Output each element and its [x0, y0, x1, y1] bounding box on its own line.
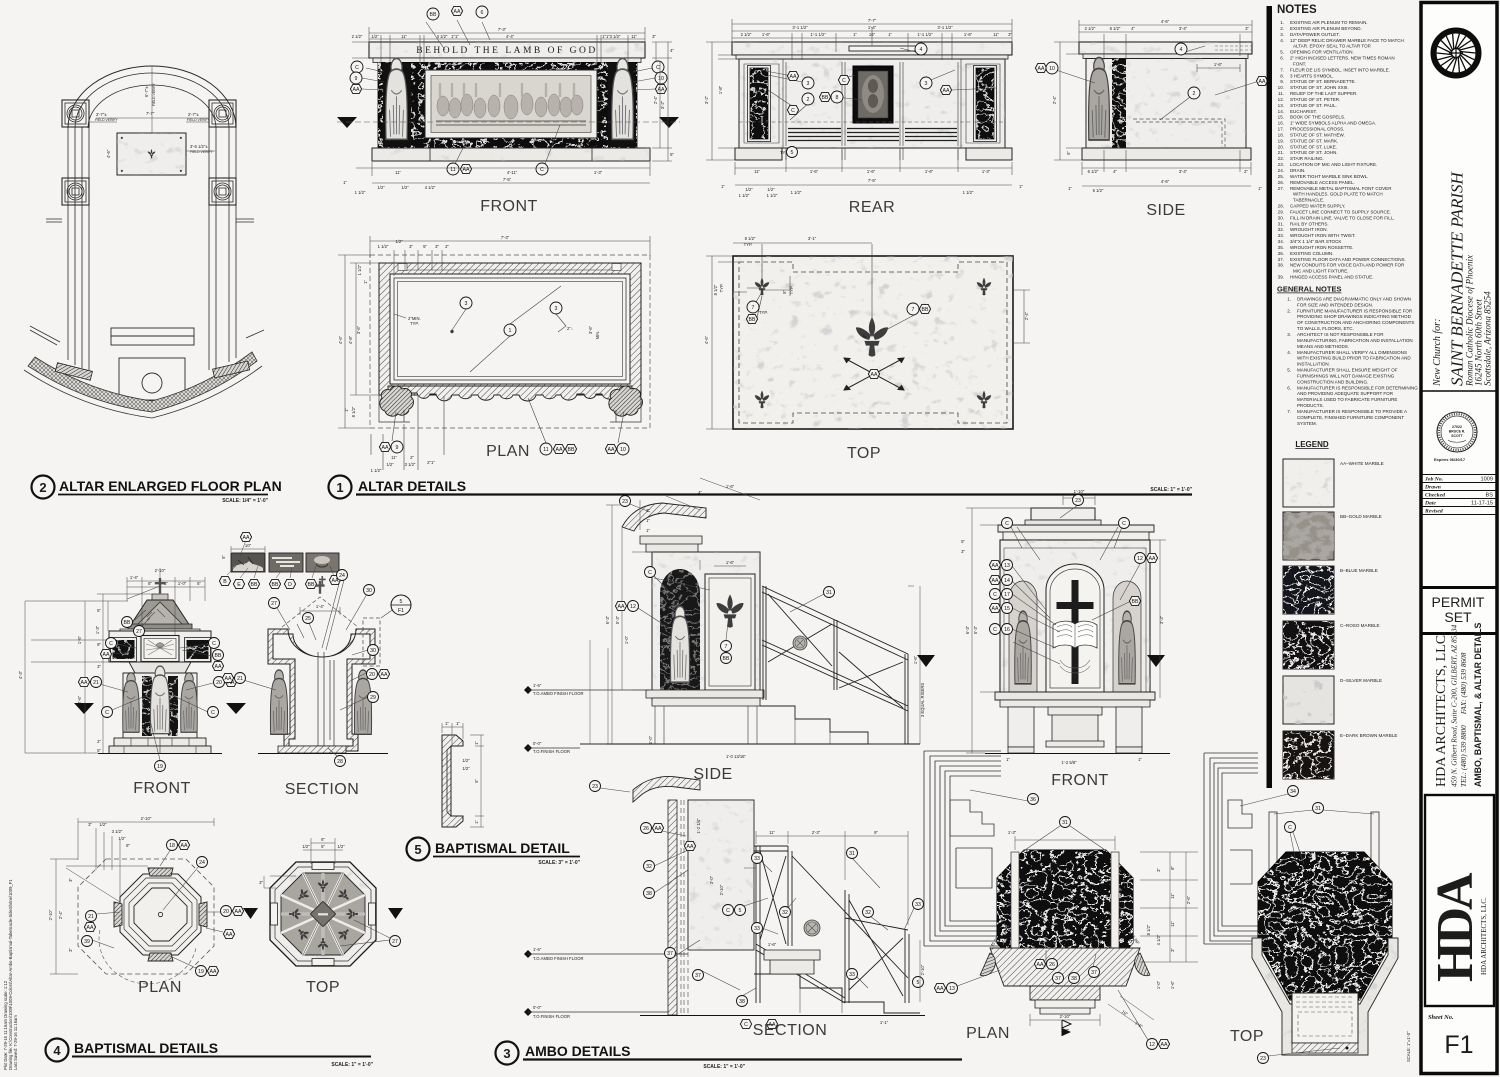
- svg-text:11": 11": [1170, 893, 1175, 899]
- svg-text:15: 15: [1004, 606, 1010, 612]
- svg-text:4'-4": 4'-4": [506, 34, 515, 39]
- svg-text:FRONT: FRONT: [1051, 772, 1109, 789]
- svg-text:SET: SET: [1444, 609, 1472, 625]
- svg-text:AA: AA: [1038, 66, 1045, 72]
- svg-text:3": 3": [1245, 26, 1249, 31]
- svg-text:BB: BB: [272, 582, 279, 588]
- svg-text:4'-3": 4'-3": [18, 670, 23, 679]
- svg-text:STATUE OF ST. LUKE.: STATUE OF ST. LUKE.: [1290, 144, 1337, 149]
- svg-text:WATER TIGHT MARBLE SINK BOWL.: WATER TIGHT MARBLE SINK BOWL.: [1290, 174, 1368, 179]
- svg-text:32: 32: [782, 910, 788, 916]
- svg-text:1'-2 5/8": 1'-2 5/8": [1061, 760, 1077, 765]
- svg-text:AA: AA: [243, 535, 250, 541]
- svg-text:BB: BB: [215, 653, 222, 659]
- svg-text:1/2": 1/2": [371, 34, 379, 39]
- svg-text:4'-11": 4'-11": [507, 170, 518, 175]
- svg-text:MEANS AND METHODS.: MEANS AND METHODS.: [1297, 344, 1349, 349]
- svg-text:1'-2 1/4": 1'-2 1/4": [696, 818, 701, 834]
- svg-text:SIDE: SIDE: [1146, 202, 1185, 219]
- svg-text:WITH EXISTING BUILD PRIOR TO F: WITH EXISTING BUILD PRIOR TO FABRICATION…: [1297, 356, 1411, 361]
- svg-text:10: 10: [620, 447, 626, 453]
- svg-text:3'-2": 3'-2": [660, 100, 665, 109]
- svg-text:21.: 21.: [1278, 150, 1284, 155]
- svg-text:17.: 17.: [1278, 127, 1284, 132]
- svg-text:2'-6": 2'-6": [77, 695, 82, 704]
- svg-text:FOR SIZE AND INTENDED DESIGN.: FOR SIZE AND INTENDED DESIGN.: [1297, 302, 1373, 307]
- svg-text:GENERAL NOTES: GENERAL NOTES: [1277, 285, 1341, 294]
- svg-text:2: 2: [807, 97, 810, 103]
- svg-text:2" HIGH INCISED LETTERS. NEW T: 2" HIGH INCISED LETTERS. NEW TIMES ROMAN: [1290, 56, 1395, 61]
- svg-text:C: C: [993, 627, 997, 633]
- svg-text:8": 8": [126, 843, 130, 848]
- svg-text:PERMIT: PERMIT: [1432, 594, 1485, 610]
- svg-text:1'-3": 1'-3": [1008, 830, 1017, 835]
- svg-text:RAIL BY OTHERS.: RAIL BY OTHERS.: [1290, 221, 1329, 226]
- svg-text:2": 2": [1244, 169, 1248, 174]
- svg-text:19.: 19.: [1278, 138, 1284, 143]
- svg-text:1'-6": 1'-6": [726, 484, 735, 489]
- svg-text:4": 4": [670, 48, 674, 53]
- svg-text:ALTAR. EPOXY SEAL TO ALTAR TOP: ALTAR. EPOXY SEAL TO ALTAR TOP.: [1293, 44, 1371, 49]
- svg-text:2": 2": [410, 455, 414, 460]
- svg-text:1'-0": 1'-0": [648, 735, 653, 744]
- svg-text:30.: 30.: [1278, 215, 1284, 220]
- svg-text:11": 11": [401, 34, 407, 39]
- svg-text:7'-3": 7'-3": [498, 27, 507, 32]
- svg-text:34.: 34.: [1278, 239, 1284, 244]
- svg-text:9": 9": [97, 642, 101, 647]
- svg-text:3: 3: [555, 306, 558, 312]
- svg-text:2: 2: [1193, 91, 1196, 97]
- svg-text:33: 33: [849, 972, 855, 978]
- svg-text:STATUE OF ST. BERNADETTE.: STATUE OF ST. BERNADETTE.: [1290, 79, 1356, 84]
- svg-text:4'-6": 4'-6": [106, 149, 111, 158]
- svg-text:Revised: Revised: [1424, 509, 1443, 515]
- svg-text:D: D: [288, 582, 292, 588]
- svg-text:AA: AA: [235, 909, 242, 915]
- svg-text:7: 7: [752, 305, 755, 311]
- svg-text:WROUGHT IRON ROSSETTE.: WROUGHT IRON ROSSETTE.: [1290, 245, 1354, 250]
- svg-text:32.: 32.: [1278, 227, 1284, 232]
- svg-text:36.: 36.: [1278, 251, 1284, 256]
- svg-text:2'-4": 2'-4": [1052, 95, 1057, 104]
- svg-text:B–BLUE MARBLE: B–BLUE MARBLE: [1340, 568, 1378, 573]
- svg-text:1": 1": [646, 528, 650, 533]
- svg-text:8": 8": [148, 581, 152, 586]
- svg-text:24: 24: [199, 860, 205, 866]
- svg-text:LEGEND: LEGEND: [1295, 440, 1329, 449]
- svg-text:11": 11": [631, 34, 637, 39]
- svg-text:STATUE OF ST. JOHN XXIII.: STATUE OF ST. JOHN XXIII.: [1290, 85, 1349, 90]
- svg-text:FAUCET LINE CONNECT TO SUPPLY: FAUCET LINE CONNECT TO SUPPLY SOURCE.: [1290, 209, 1391, 214]
- svg-text:MIN.: MIN.: [595, 331, 600, 340]
- svg-text:AA: AA: [556, 447, 563, 453]
- svg-text:AA: AA: [992, 606, 999, 612]
- svg-text:1"1": 1"1": [451, 34, 459, 39]
- svg-text:TOP: TOP: [306, 979, 340, 996]
- svg-text:AA: AA: [992, 578, 999, 584]
- svg-text:TOP: TOP: [1230, 1028, 1264, 1045]
- svg-text:27.: 27.: [1278, 186, 1284, 191]
- svg-text:Drawn: Drawn: [1424, 485, 1441, 491]
- svg-text:1'-6": 1'-6": [913, 655, 918, 664]
- svg-text:2'-4": 2'-4": [1024, 311, 1029, 320]
- svg-text:39: 39: [84, 939, 90, 945]
- svg-text:FIELD VERIFY: FIELD VERIFY: [95, 118, 119, 122]
- svg-text:6.: 6.: [1280, 56, 1284, 61]
- svg-text:3 HEARTS SYMBOL.: 3 HEARTS SYMBOL.: [1290, 73, 1334, 78]
- svg-text:3 1/2": 3 1/2": [437, 34, 448, 39]
- svg-text:31: 31: [1315, 806, 1321, 812]
- svg-text:3": 3": [652, 34, 656, 39]
- svg-text:38: 38: [646, 891, 652, 897]
- svg-text:13: 13: [949, 986, 955, 992]
- svg-text:HINGED ACCESS PANEL AND STATUE: HINGED ACCESS PANEL AND STATUE.: [1290, 275, 1373, 280]
- svg-text:33: 33: [754, 926, 760, 932]
- svg-text:28: 28: [337, 759, 343, 765]
- svg-text:C: C: [993, 592, 997, 598]
- svg-text:24: 24: [339, 573, 345, 579]
- svg-text:BAPTISMAL DETAILS: BAPTISMAL DETAILS: [74, 1040, 218, 1056]
- svg-text:SCALE: 1" = 1'-0": SCALE: 1" = 1'-0": [1150, 487, 1192, 493]
- svg-text:30: 30: [370, 648, 376, 654]
- svg-text:Last Saved: 7-29-16 11:16am: Last Saved: 7-29-16 11:16am: [13, 1015, 18, 1070]
- svg-text:17: 17: [1004, 592, 1010, 598]
- svg-text:11": 11": [769, 830, 775, 835]
- svg-text:9: 9: [355, 76, 358, 82]
- svg-text:T.O.AMBO FINISH FLOOR: T.O.AMBO FINISH FLOOR: [533, 691, 584, 696]
- svg-text:F1: F1: [1444, 1031, 1473, 1059]
- svg-text:9.: 9.: [1280, 79, 1284, 84]
- svg-text:1'-6": 1'-6": [726, 560, 735, 565]
- svg-text:1'-6": 1'-6": [867, 169, 876, 174]
- svg-text:23.: 23.: [1278, 162, 1284, 167]
- svg-text:26.: 26.: [1278, 180, 1284, 185]
- svg-text:38: 38: [739, 999, 745, 1005]
- svg-text:5": 5": [1066, 151, 1071, 155]
- svg-text:4.: 4.: [1287, 350, 1291, 355]
- svg-text:1": 1": [1006, 757, 1010, 762]
- svg-text:COMPLETE, FINISHED FURNITURE C: COMPLETE, FINISHED FURNITURE COMPONENT: [1297, 415, 1404, 420]
- svg-text:6 1/2": 6 1/2": [1110, 26, 1121, 31]
- svg-text:1'-6": 1'-6": [925, 169, 934, 174]
- svg-text:HDA: HDA: [1427, 872, 1484, 982]
- svg-text:18.: 18.: [1278, 133, 1284, 138]
- svg-text:EXISTING AIR PLENUM TO REMAIN.: EXISTING AIR PLENUM TO REMAIN.: [1290, 20, 1368, 25]
- svg-text:1'-7": 1'-7": [1061, 1028, 1070, 1033]
- svg-text:4'-6": 4'-6": [1161, 19, 1170, 24]
- svg-text:E–DARK BROWN MARBLE: E–DARK BROWN MARBLE: [1340, 733, 1397, 738]
- svg-text:PRODUCTS.: PRODUCTS.: [1297, 403, 1324, 408]
- svg-text:FIELD VERIFY: FIELD VERIFY: [190, 150, 214, 154]
- svg-text:MIC AND LIGHT FIXTURE.: MIC AND LIGHT FIXTURE.: [1293, 269, 1349, 274]
- svg-text:12: 12: [1149, 1042, 1155, 1048]
- svg-text:1": 1": [1138, 757, 1142, 762]
- svg-text:1 1/2": 1 1/2": [378, 244, 389, 249]
- svg-text:6 1/2": 6 1/2": [1093, 188, 1104, 193]
- svg-text:20.: 20.: [1278, 144, 1284, 149]
- svg-text:RELIEF OF THE LAST SUPPER.: RELIEF OF THE LAST SUPPER.: [1290, 91, 1358, 96]
- svg-text:37: 37: [695, 973, 701, 979]
- svg-text:27: 27: [136, 629, 142, 635]
- svg-text:0'-0": 0'-0": [533, 1005, 542, 1010]
- svg-text:1009: 1009: [1481, 477, 1493, 483]
- svg-text:C: C: [648, 570, 652, 576]
- svg-text:BB: BB: [922, 307, 929, 313]
- svg-text:T.O.FINISH FLOOR: T.O.FINISH FLOOR: [533, 1014, 570, 1019]
- svg-text:11": 11": [395, 170, 401, 175]
- svg-text:3": 3": [88, 822, 92, 827]
- svg-text:4'-8": 4'-8": [348, 335, 353, 344]
- svg-text:C: C: [656, 65, 660, 71]
- svg-text:6 1/2": 6 1/2": [1088, 169, 1099, 174]
- svg-text:3": 3": [68, 878, 73, 882]
- svg-text:3 1/2": 3 1/2": [405, 462, 416, 467]
- svg-text:STATUE OF ST. MATHEW.: STATUE OF ST. MATHEW.: [1290, 133, 1345, 138]
- svg-text:38: 38: [1071, 976, 1077, 982]
- svg-text:Date: Date: [1424, 501, 1436, 507]
- svg-text:1'-6": 1'-6": [810, 169, 819, 174]
- svg-text:7'-5": 7'-5": [503, 177, 512, 182]
- svg-text:BB: BB: [1132, 599, 1139, 605]
- svg-text:1'-6": 1'-6": [533, 683, 542, 688]
- svg-text:Scottsdale, Arizona 85254: Scottsdale, Arizona 85254: [1483, 291, 1493, 386]
- svg-text:1 1/2": 1 1/2": [739, 193, 750, 198]
- svg-text:32: 32: [865, 910, 871, 916]
- svg-text:BB–GOLD MARBLE: BB–GOLD MARBLE: [1340, 514, 1382, 519]
- svg-text:TOP: TOP: [847, 445, 881, 462]
- svg-text:CAPPED WATER SUPPLY.: CAPPED WATER SUPPLY.: [1290, 204, 1345, 209]
- svg-text:2'-7"±: 2'-7"±: [96, 112, 107, 117]
- svg-text:1/2": 1/2": [462, 758, 470, 763]
- svg-text:1'-6": 1'-6": [964, 32, 973, 37]
- svg-text:1": 1": [1068, 186, 1072, 191]
- svg-text:1": 1": [646, 518, 650, 523]
- svg-text:STATUE OF ST. PAUL.: STATUE OF ST. PAUL.: [1290, 103, 1337, 108]
- svg-text:AA: AA: [790, 74, 797, 80]
- svg-text:5": 5": [97, 748, 101, 753]
- svg-text:2'-7"±: 2'-7"±: [188, 112, 199, 117]
- svg-text:1/2": 1/2": [377, 185, 385, 190]
- svg-text:459 N. Gilbert Road, Suite: 459 N. Gilbert Road, Suite C-200, GILBER…: [1450, 624, 1459, 787]
- svg-text:9: 9: [396, 445, 399, 451]
- svg-text:2'-10": 2'-10": [48, 909, 53, 920]
- svg-text:1/2": 1/2": [118, 836, 126, 841]
- svg-text:1 1/2": 1 1/2": [371, 468, 382, 473]
- svg-text:E: E: [237, 582, 241, 588]
- svg-text:15.: 15.: [1278, 115, 1284, 120]
- svg-text:2"1": 2"1": [427, 460, 435, 465]
- svg-text:3'-6": 3'-6": [588, 325, 593, 334]
- svg-text:3'-1": 3'-1": [808, 236, 817, 241]
- svg-text:28.: 28.: [1278, 204, 1284, 209]
- svg-text:8.: 8.: [1280, 73, 1284, 78]
- svg-text:36: 36: [1030, 797, 1036, 803]
- svg-text:1": 1": [445, 721, 449, 726]
- svg-text:27: 27: [392, 939, 398, 945]
- svg-text:1.: 1.: [1280, 20, 1284, 25]
- svg-text:12: 12: [630, 604, 636, 610]
- svg-text:Job No.: Job No.: [1424, 477, 1443, 483]
- svg-text:11": 11": [754, 169, 760, 174]
- svg-text:MANUFACTURER IS RESPONSIBLE TO: MANUFACTURER IS RESPONSIBLE TO PROVIDE A: [1297, 409, 1408, 414]
- svg-text:MANUFACTURING, FABRICATION AND: MANUFACTURING, FABRICATION AND INSTALLAT…: [1297, 338, 1413, 343]
- svg-text:STAIR RAILING.: STAIR RAILING.: [1290, 156, 1324, 161]
- svg-text:1": 1": [1258, 186, 1262, 191]
- svg-text:4.: 4.: [1280, 38, 1284, 43]
- svg-text:3": 3": [97, 664, 101, 669]
- svg-text:7: 7: [725, 644, 728, 650]
- svg-text:7'-3": 7'-3": [501, 235, 510, 240]
- svg-text:FLEUR DE LIS SYMBOL. INSET INT: FLEUR DE LIS SYMBOL. INSET INTO MARBLE.: [1290, 67, 1390, 72]
- svg-text:20: 20: [223, 909, 229, 915]
- svg-text:2.: 2.: [1287, 308, 1291, 313]
- svg-text:FILL IN DRAIN LINE. VALVE TO C: FILL IN DRAIN LINE. VALVE TO CLOSE FOR F…: [1290, 215, 1395, 220]
- svg-text:REMOVABLE ACCESS PANEL.: REMOVABLE ACCESS PANEL.: [1290, 180, 1355, 185]
- svg-text:1 1/2": 1 1/2": [357, 264, 362, 275]
- svg-text:1/2": 1/2": [302, 844, 310, 849]
- svg-text:3'-3": 3'-3": [1159, 615, 1164, 624]
- svg-text:ALTAR DETAILS: ALTAR DETAILS: [358, 478, 466, 494]
- svg-text:MATERIALS USED TO FABRICATE FU: MATERIALS USED TO FABRICATE FURNITURE: [1297, 397, 1397, 402]
- svg-text:3": 3": [259, 880, 263, 885]
- svg-text:1 1/2": 1 1/2": [355, 190, 366, 195]
- svg-text:AA: AA: [943, 88, 950, 94]
- svg-text:1/2": 1/2": [337, 844, 345, 849]
- svg-text:4 1/2": 4 1/2": [425, 185, 436, 190]
- svg-text:18: 18: [169, 843, 175, 849]
- svg-text:1": 1": [853, 32, 857, 37]
- svg-text:2'-4": 2'-4": [653, 95, 658, 104]
- svg-text:1'-0": 1'-0": [1156, 980, 1161, 989]
- svg-text:3: 3: [807, 81, 810, 87]
- svg-text:2'-4": 2'-4": [58, 910, 63, 919]
- svg-text:3": 3": [435, 244, 439, 249]
- svg-text:23: 23: [592, 784, 598, 790]
- svg-text:6: 6: [481, 10, 484, 16]
- svg-text:EUCHARIST.: EUCHARIST.: [1290, 109, 1317, 114]
- svg-text:4'-6": 4'-6": [1161, 179, 1170, 184]
- svg-text:1'-4": 1'-4": [316, 604, 325, 609]
- svg-text:TO WALLS, FLOORS, ETC.: TO WALLS, FLOORS, ETC.: [1297, 326, 1354, 331]
- svg-text:2'-10": 2'-10": [920, 964, 925, 975]
- svg-text:23: 23: [1075, 498, 1081, 504]
- svg-text:WROUGHT IRON.: WROUGHT IRON.: [1290, 227, 1328, 232]
- svg-text:3": 3": [1008, 32, 1012, 37]
- svg-text:4'-6": 4'-6": [704, 335, 709, 344]
- svg-text:3.: 3.: [1280, 32, 1284, 37]
- svg-text:AA: AA: [181, 843, 188, 849]
- svg-text:1'-6": 1'-6": [762, 32, 771, 37]
- svg-text:AA: AA: [226, 932, 233, 938]
- svg-text:12: 12: [1137, 556, 1143, 562]
- svg-text:39.: 39.: [1278, 275, 1284, 280]
- svg-text:1/2": 1/2": [395, 239, 403, 244]
- svg-text:5: 5: [400, 599, 403, 605]
- svg-text:1'-0 13/16": 1'-0 13/16": [726, 754, 746, 759]
- svg-text:1": 1": [343, 180, 347, 185]
- svg-text:BOOK OF THE GOSPELS.: BOOK OF THE GOSPELS.: [1290, 115, 1345, 120]
- svg-text:TEL: (480) 539 8800 FA: TEL: (480) 539 8800 FAX: (480) 539 8608: [1459, 652, 1468, 787]
- svg-text:14.: 14.: [1278, 109, 1284, 114]
- svg-text:C: C: [791, 108, 795, 114]
- svg-text:2 1/2": 2 1/2": [352, 34, 363, 39]
- svg-text:1 1/2": 1 1/2": [767, 193, 778, 198]
- svg-text:1'-5": 1'-5": [77, 635, 82, 644]
- svg-text:EXISTING COLUMN.: EXISTING COLUMN.: [1290, 251, 1333, 256]
- svg-text:4: 4: [53, 1043, 61, 1058]
- svg-text:AMBO, BAPTISMAL, & ALTAR DETAI: AMBO, BAPTISMAL, & ALTAR DETAILS: [1473, 623, 1483, 787]
- svg-text:FRONT: FRONT: [480, 198, 538, 215]
- svg-text:BB: BB: [568, 447, 575, 453]
- svg-text:1'-1 1/2": 1'-1 1/2": [917, 32, 933, 37]
- svg-text:WROUGHT IRON WITH TWIST.: WROUGHT IRON WITH TWIST.: [1290, 233, 1356, 238]
- svg-text:LOCATION OF MIC AND LIGHT FIXT: LOCATION OF MIC AND LIGHT FIXTURE.: [1290, 162, 1377, 167]
- svg-text:TYP.: TYP.: [759, 310, 768, 315]
- svg-text:4'-6": 4'-6": [338, 335, 343, 344]
- svg-text:AA: AA: [992, 563, 999, 569]
- svg-text:HDA ARCHITECTS, LLC.: HDA ARCHITECTS, LLC.: [1434, 631, 1449, 787]
- svg-text:4: 4: [920, 47, 923, 53]
- svg-text:ARCHITECT IS NOT RESPONSIBLE F: ARCHITECT IS NOT RESPONSIBLE FOR: [1297, 332, 1384, 337]
- svg-text:1'-6": 1'-6": [1214, 62, 1223, 67]
- svg-text:11: 11: [543, 447, 548, 453]
- svg-text:SCOTT: SCOTT: [1451, 434, 1463, 438]
- svg-text:8": 8": [1170, 866, 1175, 870]
- svg-text:24.: 24.: [1278, 168, 1284, 173]
- svg-text:AA: AA: [1161, 1042, 1168, 1048]
- svg-text:1/2": 1/2": [386, 462, 394, 467]
- svg-text:1 1/2": 1 1/2": [963, 190, 974, 195]
- svg-text:2'-3": 2'-3": [812, 830, 821, 835]
- svg-text:21: 21: [88, 914, 94, 920]
- svg-text:3 1/2": 3 1/2": [112, 829, 123, 834]
- svg-text:3: 3: [925, 81, 928, 87]
- svg-text:1/2": 1/2": [99, 822, 107, 827]
- svg-text:1": 1": [888, 32, 892, 37]
- svg-text:C: C: [212, 641, 216, 647]
- svg-text:DRAWINGS ARE DIAGRAMMATIC ONLY: DRAWINGS ARE DIAGRAMMATIC ONLY AND SHOWN: [1297, 297, 1411, 302]
- svg-text:11": 11": [391, 455, 397, 460]
- svg-text:AA: AA: [687, 844, 694, 850]
- svg-text:T.O.AMBO FINISH FLOOR: T.O.AMBO FINISH FLOOR: [533, 956, 584, 961]
- svg-text:MANUFACTURER SHALL VERIFY ALL: MANUFACTURER SHALL VERIFY ALL DIMENSIONS: [1297, 350, 1407, 355]
- svg-text:25: 25: [305, 616, 311, 622]
- svg-text:TYP.: TYP.: [719, 284, 724, 293]
- svg-text:1'-4": 1'-4": [130, 575, 139, 580]
- svg-text:PLAN: PLAN: [966, 1025, 1010, 1042]
- svg-text:3": 3": [164, 581, 168, 586]
- svg-text:10.: 10.: [1278, 85, 1284, 90]
- svg-text:SYSTEM.: SYSTEM.: [1297, 421, 1317, 426]
- svg-text:C: C: [211, 710, 215, 716]
- svg-text:C: C: [1122, 521, 1126, 527]
- svg-text:BB: BB: [822, 95, 829, 101]
- svg-text:5: 5: [791, 150, 794, 156]
- svg-text:TYP.: TYP.: [744, 242, 753, 247]
- svg-text:WITH HANDLES. GOLD PLATE TO MA: WITH HANDLES. GOLD PLATE TO MATCH: [1293, 192, 1383, 197]
- svg-text:PLAN: PLAN: [486, 443, 530, 460]
- svg-text:3.: 3.: [1287, 332, 1291, 337]
- svg-text:25.: 25.: [1278, 174, 1284, 179]
- svg-text:BB: BB: [749, 317, 756, 323]
- svg-text:CONSTRUCTION AND BUILDING.: CONSTRUCTION AND BUILDING.: [1297, 379, 1368, 384]
- svg-text:FONT.: FONT.: [1293, 61, 1306, 66]
- svg-text:NEW CONDUITS FOR VOICE DATA AN: NEW CONDUITS FOR VOICE DATA AND POWER FO…: [1290, 263, 1405, 268]
- svg-text:26: 26: [643, 826, 649, 832]
- svg-text:1'-6": 1'-6": [1170, 980, 1175, 989]
- svg-text:32: 32: [646, 864, 652, 870]
